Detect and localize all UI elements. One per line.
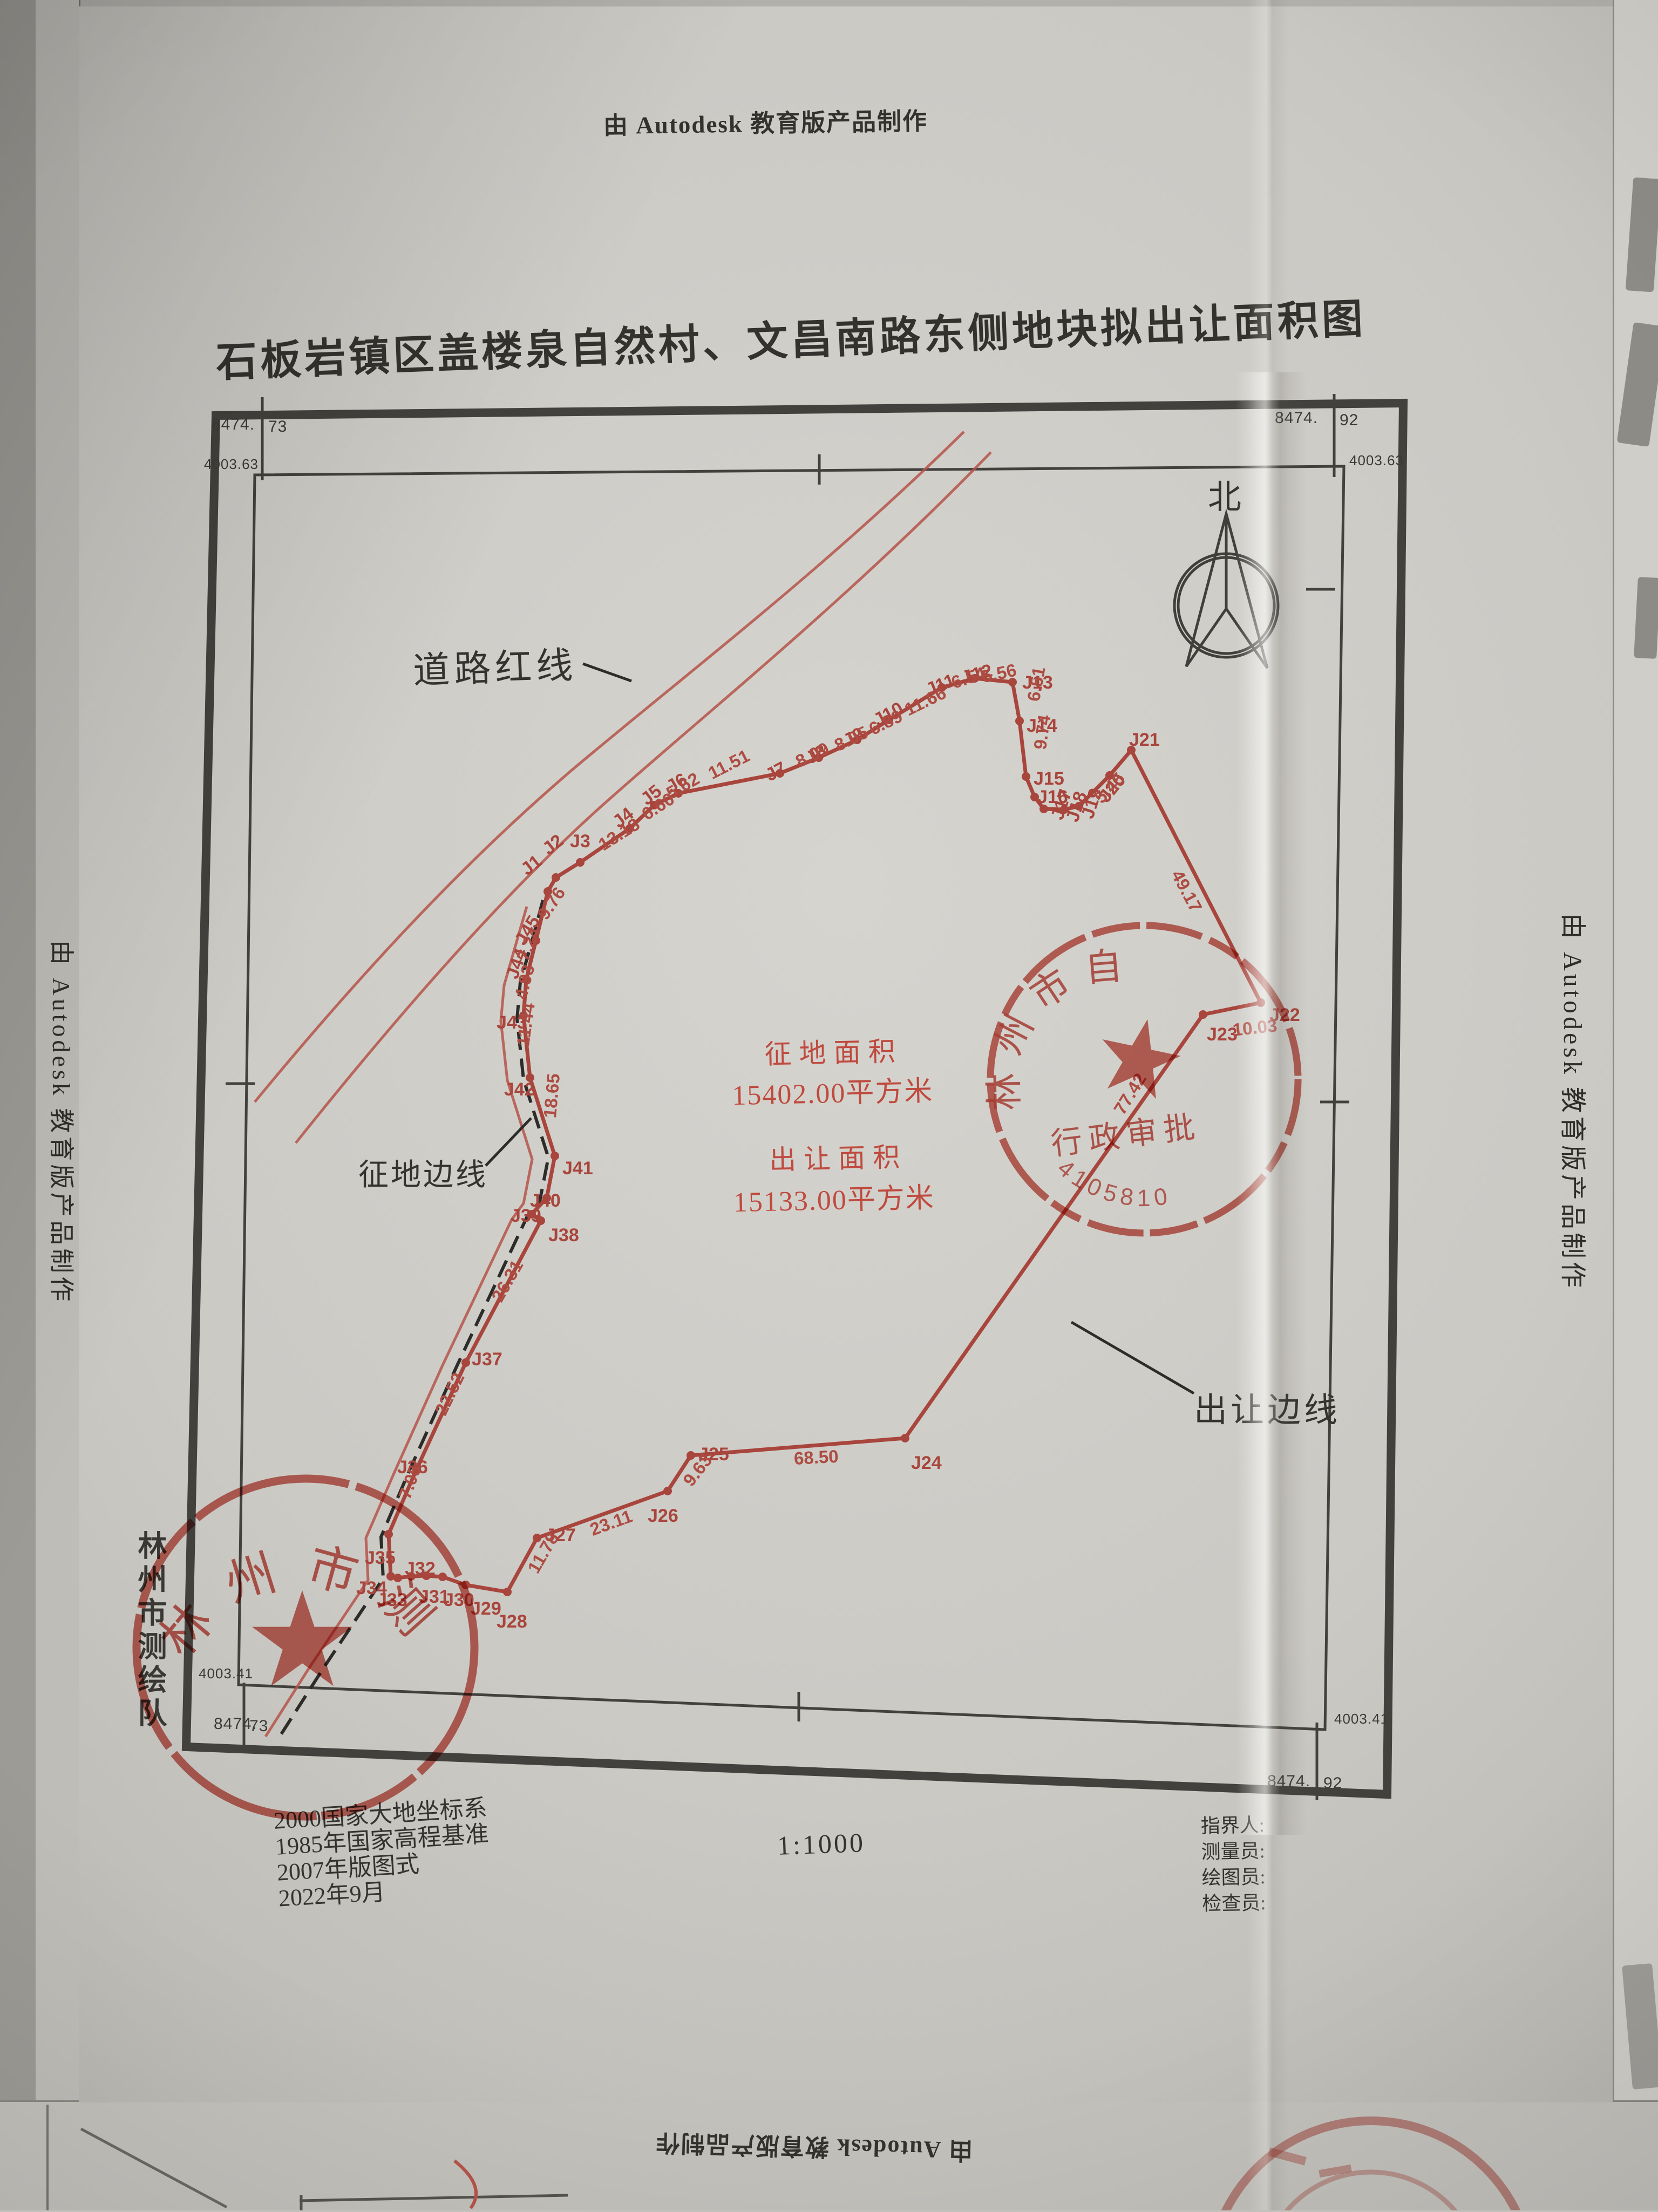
seal-star-icon bbox=[1092, 1011, 1186, 1102]
svg-text:4105810: 4105810 bbox=[1052, 1154, 1174, 1212]
svg-text:林州市测绘队: 林州市测绘队 bbox=[0, 0, 459, 1666]
photo-of-survey-map: { "captions": { "top": "由 Autodesk 教育版产品… bbox=[0, 0, 1658, 2210]
survey-seal-arc-text: 林州市测绘队 bbox=[0, 0, 459, 1666]
seal-layer: 林州市测绘队 林州市自 行政审批 4105810 bbox=[0, 0, 1658, 2210]
approval-seal-arc-text: 林州市自 bbox=[984, 945, 1138, 1111]
approval-seal: 林州市自 行政审批 4105810 bbox=[984, 925, 1298, 1233]
seal-star-icon bbox=[252, 1590, 352, 1686]
survey-team-seal: 林州市测绘队 bbox=[0, 0, 474, 1816]
approval-seal-number: 4105810 bbox=[1052, 1154, 1174, 1212]
partial-bottom-right-seal bbox=[1209, 2121, 1533, 2210]
approval-seal-sub-text: 行政审批 bbox=[1049, 1108, 1204, 1162]
svg-text:林州市自: 林州市自 bbox=[984, 945, 1138, 1111]
